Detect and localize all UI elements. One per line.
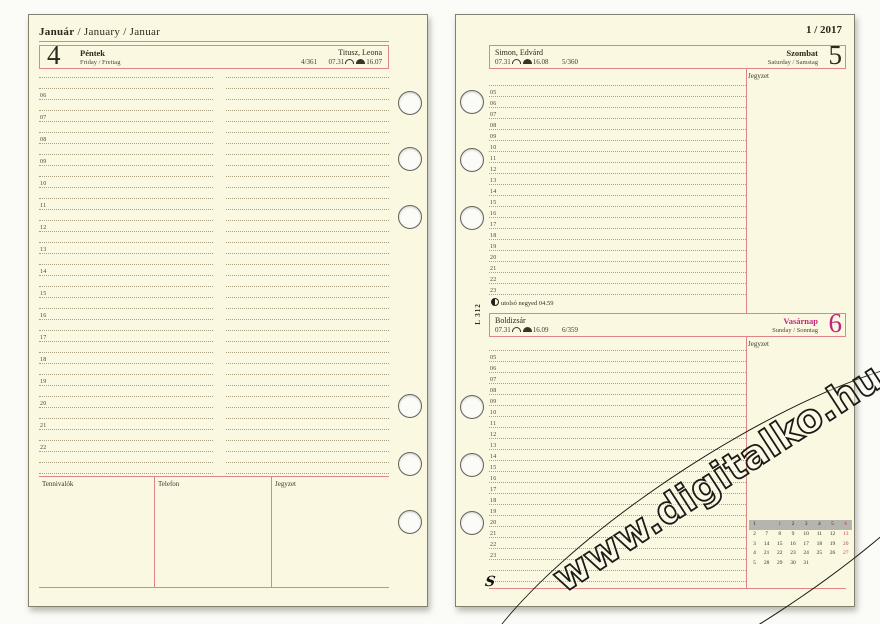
column-gap [214,71,225,475]
binder-hole [460,206,484,230]
day-count: 4/361 [301,58,317,66]
day-header-sunday: Boldizsár 07.3116.09 6/359 Vasárnap Sund… [489,313,846,337]
binder-hole [460,148,484,172]
nameday: Boldizsár [495,316,526,325]
nameday: Titusz, Leona [338,48,382,57]
sunset-time: 16.09 [533,326,549,334]
sunset-icon [523,59,532,64]
notes-column-line [746,69,747,313]
month-header: Január / January / Januar [39,26,160,38]
notes-column-label: Jegyzet [748,340,769,348]
hour-label: 23 [490,288,497,294]
sunrise-time: 07.31 [329,58,345,66]
footer-top-rule [39,476,389,477]
hour-line: 23 [489,283,746,295]
binder-hole [398,452,422,476]
day-name: Szombat [786,48,818,58]
day-number: 4 [47,42,61,69]
day-count: 5/360 [562,58,578,66]
month-name-intl: / January / Januar [74,26,160,38]
sunset-icon [523,327,532,332]
day-name: Péntek [80,48,105,58]
product-code: L 312 [474,294,486,334]
binder-hole [398,205,422,229]
sunrise-time: 07.31 [495,58,511,66]
binder-hole [460,453,484,477]
sunset-icon [356,59,365,64]
footer-divider [154,476,155,587]
day-name-intl: Friday / Freitag [80,59,120,66]
binder-hole [460,511,484,535]
footer-divider [271,476,272,587]
sunrise-icon [345,59,354,64]
sunrise-icon [512,327,521,332]
binder-hole [398,510,422,534]
sun-times: 07.3116.08 5/360 [495,58,578,66]
binder-hole [460,395,484,419]
day-name: Vasárnap [783,316,818,326]
footer-label-todo: Tennivalók [42,480,73,488]
sunset-time: 16.07 [366,58,382,66]
month-name-hu: Január [39,26,74,38]
notes-column-label: Jegyzet [748,72,769,80]
binder-hole [398,147,422,171]
sunset-time: 16.08 [533,58,549,66]
planner-photo: Január / January / Januar 4 Péntek Frida… [0,0,880,624]
footer-bottom-rule [39,587,389,588]
day-count: 6/359 [562,326,578,334]
day-header-saturday: Simon, Edvárd 07.3116.08 5/360 Szombat S… [489,45,846,69]
sunrise-icon [512,59,521,64]
month-underline [39,41,389,42]
nameday: Simon, Edvárd [495,48,543,57]
day-name-intl: Sunday / Sonntag [772,327,818,334]
day-number: 5 [829,42,843,69]
day-number: 6 [829,310,843,337]
footer-label-phone: Telefon [158,480,179,488]
footer-label-notes: Jegyzet [275,480,296,488]
sun-times: 07.3116.09 6/359 [495,326,578,334]
day-name-intl: Saturday / Samstag [768,59,818,66]
binder-hole [460,90,484,114]
moon-phase-note: utolsó negyed 04.59 [491,298,554,307]
page-number: 1 / 2017 [806,24,842,36]
binder-hole [398,394,422,418]
sunrise-time: 07.31 [495,326,511,334]
sun-times: 4/361 07.3116.07 [301,58,382,66]
last-quarter-moon-icon [491,298,499,306]
left-page: Január / January / Januar 4 Péntek Frida… [28,14,428,607]
binder-hole [398,91,422,115]
moon-phase-text: utolsó negyed 04.59 [501,300,554,307]
